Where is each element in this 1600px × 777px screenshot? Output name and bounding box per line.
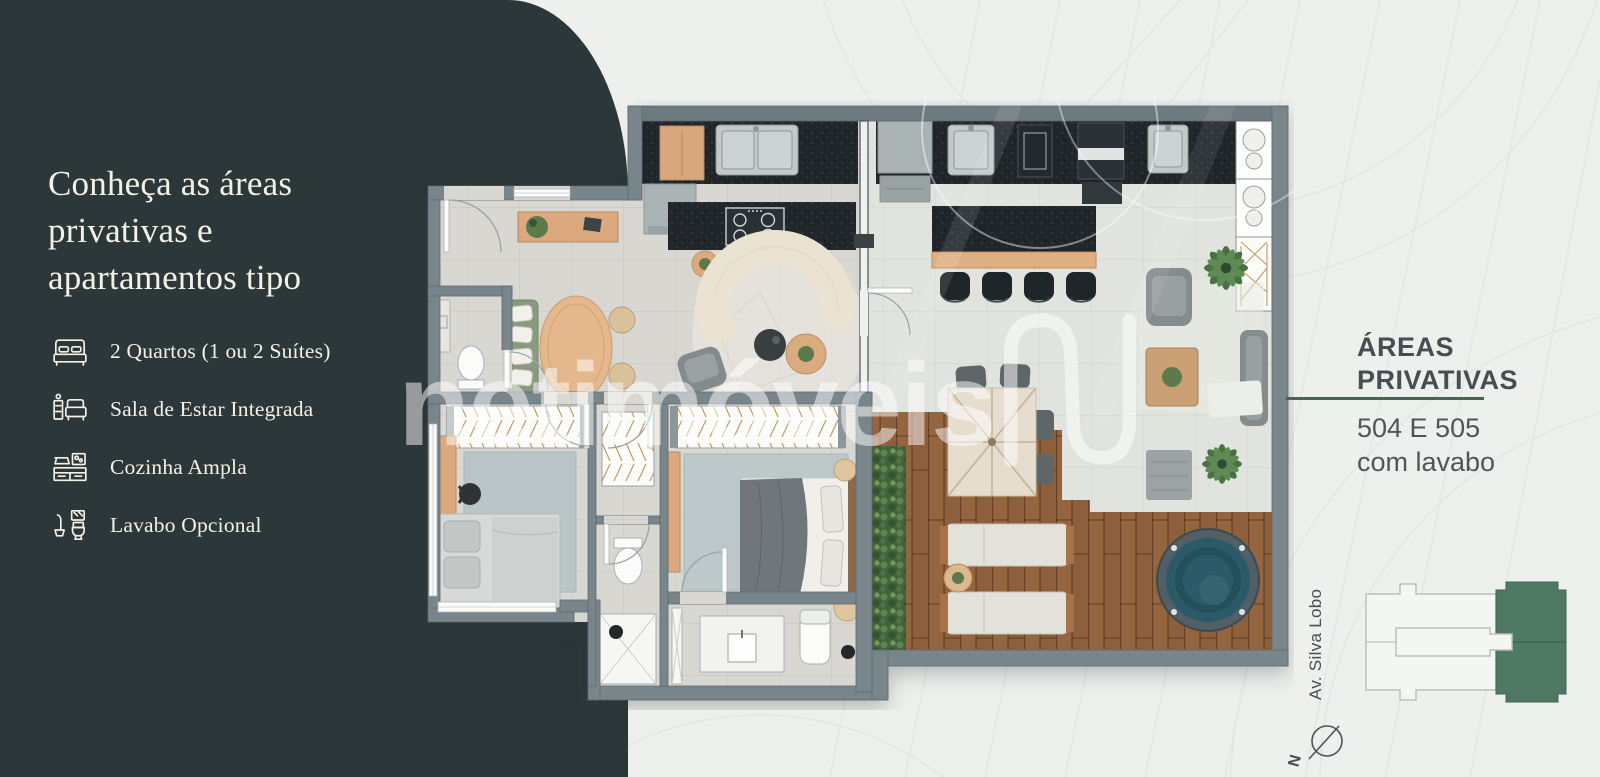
feature-label: Lavabo Opcional <box>110 513 262 538</box>
netimoveis-logo-icon <box>1000 312 1140 468</box>
page: Conheça as áreas privativas e apartament… <box>0 0 1600 777</box>
areas-privativas-title: ÁREAS PRIVATIVAS <box>1357 331 1518 397</box>
watermark: netimóveis <box>398 346 1140 468</box>
feature-label: Cozinha Ampla <box>110 455 247 480</box>
accent-divider <box>1286 397 1484 400</box>
watermark-text: netimóveis <box>398 346 994 464</box>
feature-label: 2 Quartos (1 ou 2 Suítes) <box>110 339 331 364</box>
street-label: Av. Silva Lobo <box>1306 578 1330 710</box>
toilet-icon <box>46 505 94 545</box>
feature-label: Sala de Estar Integrada <box>110 397 313 422</box>
feature-item-lavabo: Lavabo Opcional <box>46 496 331 554</box>
unit-numbers: 504 E 505 com lavabo <box>1357 411 1495 479</box>
bed-icon <box>46 331 94 371</box>
living-room-icon <box>46 389 94 429</box>
jacuzzi <box>1157 529 1259 631</box>
bed-1 <box>438 514 560 608</box>
feature-item-bedrooms: 2 Quartos (1 ou 2 Suítes) <box>46 322 331 380</box>
location-keyplan <box>1360 578 1572 706</box>
feature-item-kitchen: Cozinha Ampla <box>46 438 331 496</box>
kitchen-icon <box>46 447 94 487</box>
feature-item-living: Sala de Estar Integrada <box>46 380 331 438</box>
feature-list: 2 Quartos (1 ou 2 Suítes) Sala de Estar … <box>46 322 331 554</box>
page-title: Conheça as áreas privativas e apartament… <box>48 160 301 301</box>
entry-sideboard <box>518 212 618 242</box>
